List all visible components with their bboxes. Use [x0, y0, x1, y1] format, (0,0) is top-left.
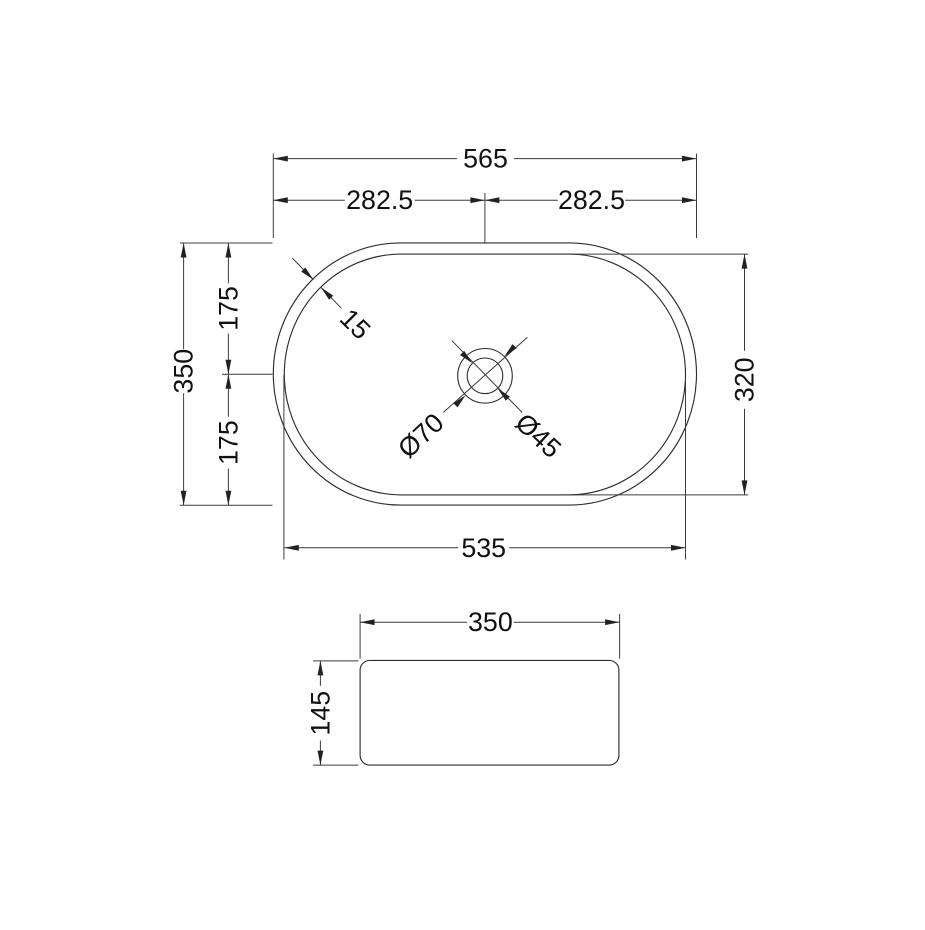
svg-text:175: 175 — [213, 286, 243, 331]
svg-text:175: 175 — [213, 420, 243, 465]
svg-text:535: 535 — [461, 533, 506, 563]
svg-text:282.5: 282.5 — [346, 185, 413, 215]
svg-text:145: 145 — [305, 691, 335, 736]
svg-text:320: 320 — [730, 357, 760, 402]
svg-text:350: 350 — [468, 607, 513, 637]
svg-text:282.5: 282.5 — [558, 185, 625, 215]
svg-text:565: 565 — [463, 144, 508, 174]
svg-text:350: 350 — [169, 349, 199, 394]
